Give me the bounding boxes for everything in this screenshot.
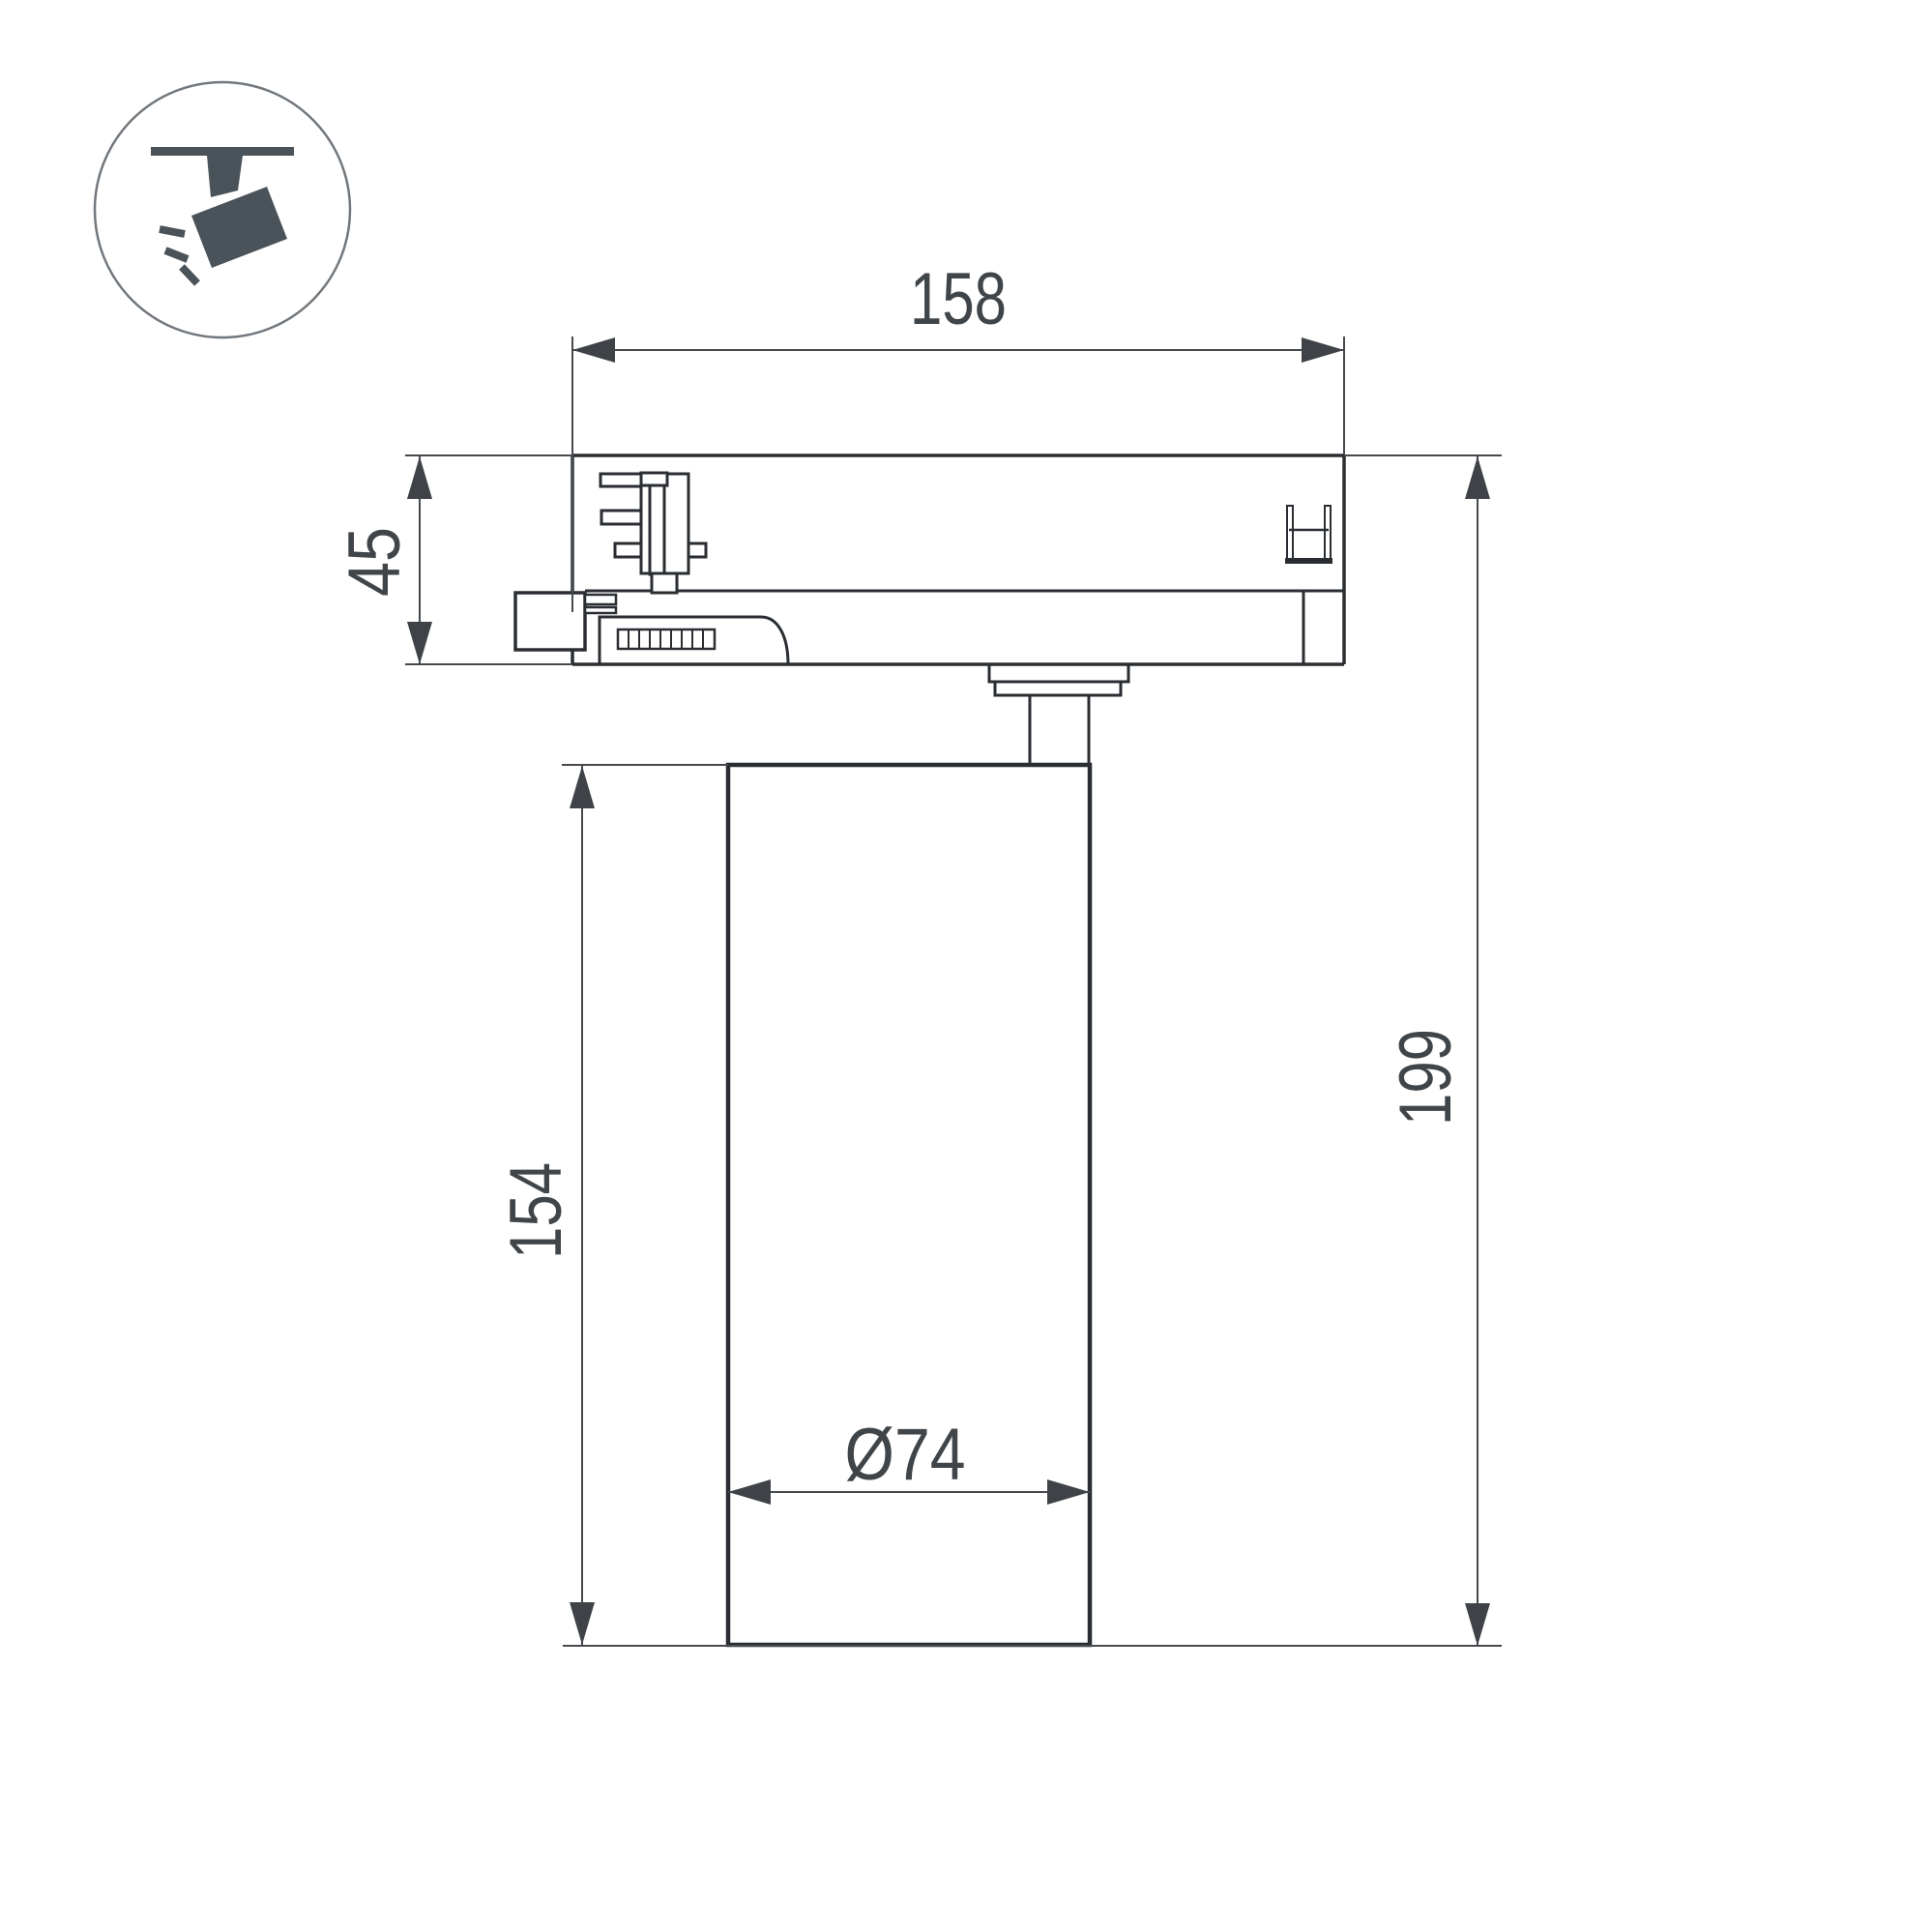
arrowhead-down xyxy=(570,1602,595,1645)
arrowhead-right xyxy=(1302,337,1344,363)
swivel-joint xyxy=(989,664,1128,765)
dim-label-body-height: 154 xyxy=(495,1162,577,1259)
adapter-contact-block xyxy=(600,473,706,593)
dim-label-body-diameter: Ø74 xyxy=(845,1414,966,1496)
arrowhead-left xyxy=(728,1479,771,1505)
adapter-lock-lever xyxy=(515,593,585,650)
arrowhead-up xyxy=(1465,456,1490,499)
technical-drawing-page: 158 45 154 199 Ø74 xyxy=(0,0,1932,1932)
adapter-latch-detail xyxy=(585,595,616,613)
dim-body-diameter: Ø74 xyxy=(728,1414,1090,1505)
adapter-lower-housing xyxy=(600,617,788,664)
arrowhead-down xyxy=(1465,1603,1490,1646)
dim-body-height: 154 xyxy=(495,765,728,1645)
contact-prong xyxy=(600,474,641,486)
contact-prong xyxy=(615,543,641,557)
track-adapter-view xyxy=(515,455,1344,765)
lamp-cylinder-body xyxy=(728,765,1090,1645)
contact-rod xyxy=(650,485,664,574)
joint-stem xyxy=(1030,695,1089,765)
dim-label-total-height: 199 xyxy=(1385,1029,1467,1126)
arrowhead-right xyxy=(1047,1479,1090,1505)
contact-prong xyxy=(601,511,641,524)
arrowhead-left xyxy=(572,337,615,363)
track-spotlight-icon xyxy=(95,82,350,337)
contact-rod-cap xyxy=(641,473,667,485)
adapter-end-clip xyxy=(1285,506,1332,561)
adapter-ribbed-switch xyxy=(618,629,715,649)
dim-label-adapter-height: 45 xyxy=(334,527,416,597)
arrowhead-down xyxy=(407,622,432,664)
arrowhead-up xyxy=(570,766,595,808)
switch-ribs xyxy=(629,629,703,649)
dim-label-adapter-width: 158 xyxy=(910,258,1007,340)
arrowhead-up xyxy=(407,456,432,499)
icon-ceiling-track xyxy=(151,147,294,156)
contact-prong xyxy=(688,543,706,557)
contact-foot xyxy=(652,573,677,593)
